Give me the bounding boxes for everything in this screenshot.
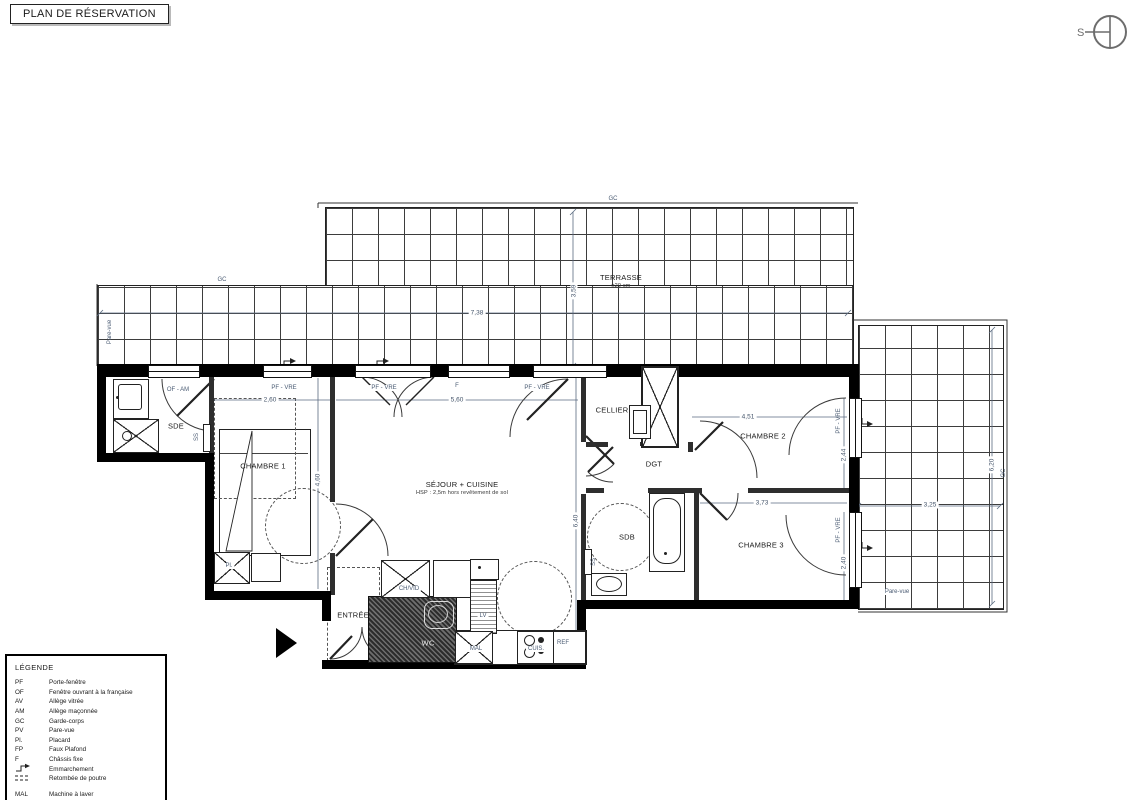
legend-heading: LÉGENDE xyxy=(7,656,165,678)
burner-icon xyxy=(524,635,535,646)
window-sejour-pf1 xyxy=(355,365,431,378)
legend-box: LÉGENDE PFPorte-fenêtreOFFenêtre ouvrant… xyxy=(5,654,167,800)
dimension-7-38: 7,38 xyxy=(469,310,486,317)
room-label-entree: ENTRÉE xyxy=(337,611,369,620)
bathtub-drain-dot xyxy=(664,552,667,555)
window-sejour-fixed xyxy=(448,365,510,378)
window-chambre1-pf xyxy=(263,365,312,378)
partition-cellier-dgt xyxy=(586,442,608,447)
legend-label: Allège maçonnée xyxy=(49,708,165,715)
legend-abbr: F xyxy=(15,756,49,763)
annotation-pare-vue: Pare-vue xyxy=(883,589,911,595)
legend-abbr: AV xyxy=(15,698,49,705)
room-label-dgt: DGT xyxy=(646,460,662,469)
wall-left-upper xyxy=(97,364,106,462)
legend-item-pf: PFPorte-fenêtre xyxy=(7,678,165,688)
sde-towel-dryer-icon xyxy=(203,424,211,452)
annotation-ref: REF xyxy=(555,640,571,646)
legend-label: Emmarchement xyxy=(49,766,165,773)
partition-sdb-chambre3 xyxy=(694,493,699,604)
bathtub-inner xyxy=(653,498,681,564)
legend-label: Retombée de poutre xyxy=(49,775,165,782)
kitchen-sink-icon xyxy=(470,559,499,580)
legend-item-fp: FPFaux Plafond xyxy=(7,745,165,755)
window-sejour-pf2 xyxy=(533,365,607,378)
annotation-cuis: CUIS. xyxy=(526,646,546,652)
annotation-gc: GC xyxy=(218,277,227,283)
annotation-of-am: OF - AM xyxy=(165,387,191,393)
placard2-icon xyxy=(251,553,281,582)
kitchen-worktop-icon xyxy=(433,560,472,598)
room-sublabel-sejour-cuisine: HSP : 2,5m hors revêtement de sol xyxy=(416,490,508,496)
annotation-pare-vue: Pare-vue xyxy=(107,320,113,344)
room-label-sdb: SDB xyxy=(619,533,635,542)
beam-icon xyxy=(15,774,49,784)
wall-entry xyxy=(322,591,331,621)
room-label-chambre-3: CHAMBRE 3 xyxy=(738,541,784,550)
toilet-bowl-icon xyxy=(428,605,448,623)
window-chambre2-pf xyxy=(849,398,862,458)
annotation-f: F xyxy=(453,383,461,389)
burner-small-icon xyxy=(538,637,544,643)
room-label-sde: SDE xyxy=(168,422,184,431)
double-door-leaves xyxy=(362,377,434,405)
annotation-pf-vre: PF - VRE xyxy=(369,385,398,391)
annotation-pf-vre: PF - VRE xyxy=(836,517,842,542)
kitchen-faucet-dot xyxy=(478,566,481,569)
room-label-terrasse: TERRASSE±20 cm xyxy=(600,273,642,289)
dimension-5-60: 5,60 xyxy=(449,397,466,404)
partition-chambre1-sejour-lower xyxy=(330,553,335,595)
legend-label: Châssis fixe xyxy=(49,756,165,763)
annotation-pf-vre: PF - VRE xyxy=(522,385,551,391)
sdb-washbasin-bowl-icon xyxy=(596,576,622,592)
entrance-arrow-icon xyxy=(276,628,297,658)
legend-abbr: MAL xyxy=(15,791,49,798)
annotation-pl: Pl. xyxy=(223,563,234,569)
dimension-3-73: 3,73 xyxy=(754,500,771,507)
dimension-2-60: 2,60 xyxy=(262,397,279,404)
room-label-cellier: CELLIER xyxy=(596,406,629,415)
annotation-gc: GC xyxy=(609,196,618,202)
annotation-ch-vid: CH/VID xyxy=(397,586,421,592)
dimension-4-51: 4,51 xyxy=(740,414,757,421)
fridge-icon xyxy=(553,631,586,664)
legend-label: Faux Plafond xyxy=(49,746,165,753)
room-label-wc: WC xyxy=(422,639,435,648)
dimension-3-59: 3,59 xyxy=(571,283,578,300)
annotation-ss: SS xyxy=(194,433,200,441)
kitchen-duct-icon xyxy=(381,560,430,598)
window-chambre3-pf xyxy=(849,512,862,588)
legend-abbr: Pl. xyxy=(15,737,49,744)
legend-abbr: OF xyxy=(15,689,49,696)
legend-rows: PFPorte-fenêtreOFFenêtre ouvrant à la fr… xyxy=(7,678,165,800)
sde-shower-drain-icon xyxy=(122,431,132,441)
dimension-6-20: 6,20 xyxy=(989,457,996,474)
dimension-4-60: 4,60 xyxy=(315,472,322,489)
cellier-water-heater-inner xyxy=(633,410,647,434)
partition-dgt-sdb-a xyxy=(586,488,604,493)
wall-step xyxy=(97,453,214,462)
wall-bottom-c xyxy=(577,600,859,609)
legend-item-mal: MALMachine à laver xyxy=(7,790,165,800)
dimension-6-40: 6,40 xyxy=(573,513,580,530)
sde-washbasin-bowl-icon xyxy=(118,384,142,410)
legend-label: Porte-fenêtre xyxy=(49,679,165,686)
legend-abbr: FP xyxy=(15,746,49,753)
wall-left-lower xyxy=(205,453,214,600)
legend-label: Allège vitrée xyxy=(49,698,165,705)
bed-fold-icon xyxy=(226,431,252,551)
legend-abbr: AM xyxy=(15,708,49,715)
annotation-ss: SS xyxy=(591,558,597,566)
dimension-3-25: 3,25 xyxy=(922,502,939,509)
room-label-sejour-cuisine: SÉJOUR + CUISINEHSP : 2,5m hors revêteme… xyxy=(416,480,508,496)
legend-item-beam-icon: Retombée de poutre xyxy=(7,774,165,784)
floor-plan-canvas: PLAN DE RÉSERVATION S xyxy=(0,0,1135,800)
legend-label: Machine à laver xyxy=(49,791,165,798)
linework-overlay xyxy=(0,0,1135,800)
legend-abbr: PF xyxy=(15,679,49,686)
legend-label: Placard xyxy=(49,737,165,744)
dimension-2-40: 2,40 xyxy=(841,555,848,572)
annotation-pf-vre: PF - VRE xyxy=(269,385,298,391)
annotation-gc: GC xyxy=(1001,469,1007,478)
room-label-chambre-1: CHAMBRE 1 xyxy=(240,462,286,471)
window-sde-of-am xyxy=(148,365,200,378)
legend-item-step-icon: Emmarchement xyxy=(7,764,165,774)
annotation-lv: LV xyxy=(478,613,489,619)
sde-faucet-dot xyxy=(116,396,119,399)
legend-item-of: OFFenêtre ouvrant à la française xyxy=(7,688,165,698)
annotation-pf-vre: PF - VRE xyxy=(836,408,842,433)
partition-dgt-chambre2 xyxy=(688,442,693,452)
partition-chambre2-chambre3 xyxy=(748,488,849,493)
room-label-chambre-2: CHAMBRE 2 xyxy=(740,432,786,441)
legend-label: Pare-vue xyxy=(49,727,165,734)
sde-shower-icon xyxy=(113,419,159,453)
legend-abbr: GC xyxy=(15,718,49,725)
dimension-2-44: 2,44 xyxy=(841,447,848,464)
room-sublabel-terrasse: ±20 cm xyxy=(600,283,642,289)
legend-item-gc: GCGarde-corps xyxy=(7,716,165,726)
legend-item-pv: PVPare-vue xyxy=(7,726,165,736)
legend-item-pl: Pl.Placard xyxy=(7,736,165,746)
legend-label: Fenêtre ouvrant à la française xyxy=(49,689,165,696)
wall-bottom-a xyxy=(205,591,331,600)
legend-label: Garde-corps xyxy=(49,718,165,725)
partition-chambre1-sejour-upper xyxy=(330,364,335,502)
legend-item-am: AMAllège maçonnée xyxy=(7,707,165,717)
annotation-mal: MAL xyxy=(468,646,484,652)
legend-abbr: PV xyxy=(15,727,49,734)
dishwasher-icon xyxy=(470,580,497,634)
legend-item-av: AVAllège vitrée xyxy=(7,697,165,707)
